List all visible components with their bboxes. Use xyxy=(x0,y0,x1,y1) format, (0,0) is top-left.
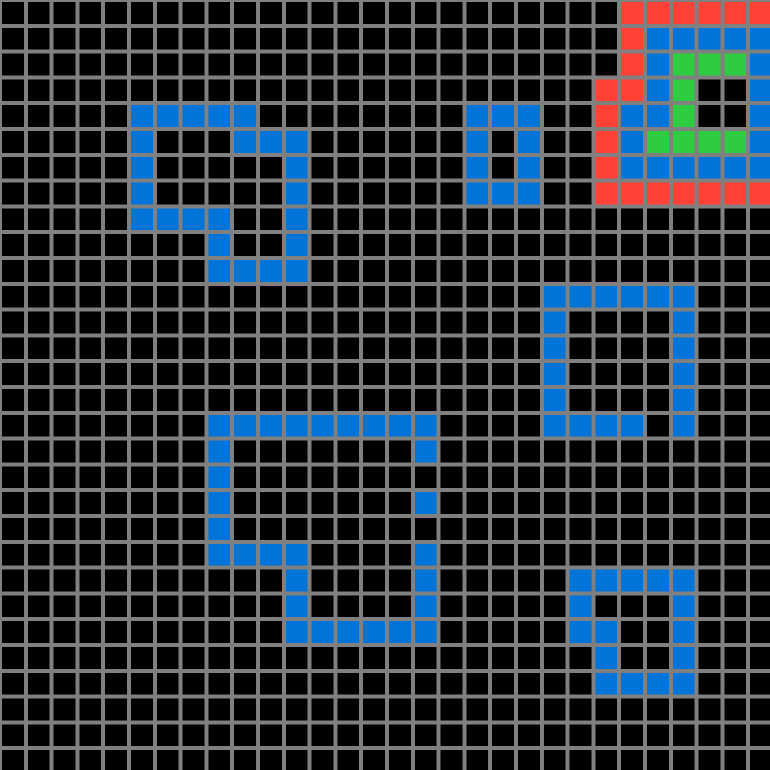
grid-cell-top-right-red-outline[interactable] xyxy=(619,181,645,207)
grid-cell-top-right-blue-ring[interactable] xyxy=(645,26,671,52)
grid-cell-center-large-overlapping-squares[interactable] xyxy=(206,490,232,516)
grid-cell-top-left-overlapping-squares[interactable] xyxy=(181,103,207,129)
grid-cell-bottom-right-overlapping-squares[interactable] xyxy=(568,619,594,645)
grid-cell-bottom-right-overlapping-squares[interactable] xyxy=(671,645,697,671)
grid-cell-top-right-blue-ring[interactable] xyxy=(671,26,697,52)
grid-cell-mid-right-square-outline[interactable] xyxy=(671,310,697,336)
grid-cell-top-right-green-inner[interactable] xyxy=(697,129,723,155)
grid-cell-bottom-right-overlapping-squares[interactable] xyxy=(671,671,697,697)
grid-cell-small-ring-top-middle[interactable] xyxy=(464,129,490,155)
grid-cell-top-left-overlapping-squares[interactable] xyxy=(284,181,310,207)
grid-cell-center-large-overlapping-squares[interactable] xyxy=(284,542,310,568)
grid-cell-center-large-overlapping-squares[interactable] xyxy=(284,568,310,594)
grid-cell-small-ring-top-middle[interactable] xyxy=(464,181,490,207)
grid-cell-top-right-red-outline[interactable] xyxy=(748,0,770,26)
grid-cell-center-large-overlapping-squares[interactable] xyxy=(284,593,310,619)
grid-cell-center-large-overlapping-squares[interactable] xyxy=(232,413,258,439)
grid-cell-top-right-red-outline[interactable] xyxy=(697,181,723,207)
grid-cell-top-right-red-outline[interactable] xyxy=(697,0,723,26)
grid-cell-mid-right-square-outline[interactable] xyxy=(568,284,594,310)
grid-cell-top-right-blue-ring[interactable] xyxy=(748,77,770,103)
grid-cell-top-right-red-outline[interactable] xyxy=(593,181,619,207)
grid-cell-bottom-right-overlapping-squares[interactable] xyxy=(671,593,697,619)
grid-cell-mid-right-square-outline[interactable] xyxy=(619,413,645,439)
grid-cell-top-left-overlapping-squares[interactable] xyxy=(232,129,258,155)
grid-cell-top-right-red-outline[interactable] xyxy=(619,77,645,103)
grid-cell-top-right-blue-ring[interactable] xyxy=(671,155,697,181)
grid-cell-top-left-overlapping-squares[interactable] xyxy=(284,232,310,258)
grid-cell-small-ring-top-middle[interactable] xyxy=(516,103,542,129)
grid-cell-small-ring-top-middle[interactable] xyxy=(464,103,490,129)
grid-cell-mid-right-square-outline[interactable] xyxy=(542,361,568,387)
grid-cell-top-left-overlapping-squares[interactable] xyxy=(181,206,207,232)
grid-cell-bottom-right-overlapping-squares[interactable] xyxy=(568,593,594,619)
grid-cell-center-large-overlapping-squares[interactable] xyxy=(335,619,361,645)
grid-cell-top-right-red-outline[interactable] xyxy=(593,77,619,103)
grid-cell-center-large-overlapping-squares[interactable] xyxy=(361,413,387,439)
grid-cell-mid-right-square-outline[interactable] xyxy=(619,284,645,310)
grid-cell-top-right-blue-ring[interactable] xyxy=(645,52,671,78)
grid-cell-top-left-overlapping-squares[interactable] xyxy=(155,103,181,129)
grid-cell-top-right-green-inner[interactable] xyxy=(697,52,723,78)
grid-cell-top-right-green-inner[interactable] xyxy=(671,77,697,103)
grid-cell-mid-right-square-outline[interactable] xyxy=(671,284,697,310)
grid-cell-top-right-red-outline[interactable] xyxy=(722,181,748,207)
grid-cell-bottom-right-overlapping-squares[interactable] xyxy=(593,671,619,697)
grid-cell-top-right-blue-ring[interactable] xyxy=(748,155,770,181)
grid-cell-mid-right-square-outline[interactable] xyxy=(593,284,619,310)
grid-cell-top-right-green-inner[interactable] xyxy=(645,129,671,155)
grid-cell-top-left-overlapping-squares[interactable] xyxy=(284,155,310,181)
grid-cell-top-left-overlapping-squares[interactable] xyxy=(206,206,232,232)
grid-cell-center-large-overlapping-squares[interactable] xyxy=(206,516,232,542)
grid-cell-top-left-overlapping-squares[interactable] xyxy=(284,258,310,284)
grid-cell-top-right-red-outline[interactable] xyxy=(645,181,671,207)
grid-cell-top-right-red-outline[interactable] xyxy=(671,0,697,26)
grid-cell-center-large-overlapping-squares[interactable] xyxy=(206,413,232,439)
grid-cell-top-right-blue-ring[interactable] xyxy=(645,103,671,129)
colored-cells-layer xyxy=(0,0,770,770)
grid-cell-top-right-green-inner[interactable] xyxy=(671,129,697,155)
grid-cell-small-ring-top-middle[interactable] xyxy=(490,103,516,129)
grid-cell-top-left-overlapping-squares[interactable] xyxy=(206,258,232,284)
grid-cell-top-right-green-inner[interactable] xyxy=(671,103,697,129)
grid-cell-bottom-right-overlapping-squares[interactable] xyxy=(671,568,697,594)
grid-cell-top-left-overlapping-squares[interactable] xyxy=(155,206,181,232)
grid-cell-top-right-red-outline[interactable] xyxy=(748,181,770,207)
grid-cell-top-left-overlapping-squares[interactable] xyxy=(129,181,155,207)
grid-cell-top-right-blue-ring[interactable] xyxy=(748,26,770,52)
grid-cell-top-right-blue-ring[interactable] xyxy=(748,52,770,78)
grid-cell-top-right-red-outline[interactable] xyxy=(593,155,619,181)
grid-cell-mid-right-square-outline[interactable] xyxy=(671,335,697,361)
grid-cell-top-left-overlapping-squares[interactable] xyxy=(232,103,258,129)
grid-cell-small-ring-top-middle[interactable] xyxy=(464,155,490,181)
grid-cell-top-right-blue-ring[interactable] xyxy=(645,77,671,103)
grid-cell-mid-right-square-outline[interactable] xyxy=(542,387,568,413)
grid-cell-center-large-overlapping-squares[interactable] xyxy=(335,413,361,439)
grid-cell-top-right-blue-ring[interactable] xyxy=(619,129,645,155)
grid-cell-center-large-overlapping-squares[interactable] xyxy=(206,464,232,490)
grid-cell-mid-right-square-outline[interactable] xyxy=(671,387,697,413)
grid-cell-center-large-overlapping-squares[interactable] xyxy=(413,439,439,465)
grid-cell-mid-right-square-outline[interactable] xyxy=(542,413,568,439)
grid-cell-center-large-overlapping-squares[interactable] xyxy=(284,619,310,645)
grid-cell-top-right-green-inner[interactable] xyxy=(671,52,697,78)
grid-cell-top-right-blue-ring[interactable] xyxy=(619,103,645,129)
grid-cell-bottom-right-overlapping-squares[interactable] xyxy=(593,645,619,671)
grid-cell-mid-right-square-outline[interactable] xyxy=(593,413,619,439)
grid-cell-mid-right-square-outline[interactable] xyxy=(542,310,568,336)
grid-cell-small-ring-top-middle[interactable] xyxy=(516,155,542,181)
grid-cell-top-right-blue-ring[interactable] xyxy=(722,155,748,181)
grid-cell-center-large-overlapping-squares[interactable] xyxy=(413,593,439,619)
grid-cell-top-right-blue-ring[interactable] xyxy=(748,103,770,129)
grid-cell-top-left-overlapping-squares[interactable] xyxy=(284,206,310,232)
grid-cell-top-right-green-inner[interactable] xyxy=(722,52,748,78)
grid-cell-top-right-red-outline[interactable] xyxy=(645,0,671,26)
grid-cell-bottom-right-overlapping-squares[interactable] xyxy=(568,568,594,594)
grid-cell-top-right-blue-ring[interactable] xyxy=(748,129,770,155)
grid-cell-center-large-overlapping-squares[interactable] xyxy=(206,439,232,465)
grid-cell-bottom-right-overlapping-squares[interactable] xyxy=(619,568,645,594)
grid-cell-bottom-right-overlapping-squares[interactable] xyxy=(619,671,645,697)
grid-cell-top-left-overlapping-squares[interactable] xyxy=(206,232,232,258)
grid-cell-top-right-blue-ring[interactable] xyxy=(645,155,671,181)
grid-cell-top-right-blue-ring[interactable] xyxy=(722,26,748,52)
grid-cell-small-ring-top-middle[interactable] xyxy=(516,181,542,207)
grid-cell-center-large-overlapping-squares[interactable] xyxy=(258,542,284,568)
grid-cell-top-left-overlapping-squares[interactable] xyxy=(258,258,284,284)
grid-cell-mid-right-square-outline[interactable] xyxy=(542,284,568,310)
grid-cell-center-large-overlapping-squares[interactable] xyxy=(387,619,413,645)
grid-cell-top-left-overlapping-squares[interactable] xyxy=(206,103,232,129)
grid-cell-mid-right-square-outline[interactable] xyxy=(542,335,568,361)
grid-cell-mid-right-square-outline[interactable] xyxy=(568,413,594,439)
grid-cell-top-left-overlapping-squares[interactable] xyxy=(129,155,155,181)
grid-cell-center-large-overlapping-squares[interactable] xyxy=(206,542,232,568)
grid-cell-top-right-red-outline[interactable] xyxy=(619,0,645,26)
grid-cell-center-large-overlapping-squares[interactable] xyxy=(413,619,439,645)
grid-cell-center-large-overlapping-squares[interactable] xyxy=(310,413,336,439)
grid-cell-top-right-red-outline[interactable] xyxy=(619,52,645,78)
grid-cell-top-left-overlapping-squares[interactable] xyxy=(129,103,155,129)
grid-cell-top-right-green-inner[interactable] xyxy=(722,129,748,155)
grid-cell-bottom-right-overlapping-squares[interactable] xyxy=(645,671,671,697)
grid-cell-top-left-overlapping-squares[interactable] xyxy=(284,129,310,155)
grid-cell-mid-right-square-outline[interactable] xyxy=(645,284,671,310)
grid-cell-center-large-overlapping-squares[interactable] xyxy=(284,413,310,439)
grid-cell-center-large-overlapping-squares[interactable] xyxy=(413,542,439,568)
grid-cell-center-large-overlapping-squares[interactable] xyxy=(387,413,413,439)
grid-cell-top-right-red-outline[interactable] xyxy=(722,0,748,26)
grid-cell-top-left-overlapping-squares[interactable] xyxy=(129,206,155,232)
puzzle-grid-board[interactable] xyxy=(0,0,770,770)
grid-cell-top-right-blue-ring[interactable] xyxy=(697,26,723,52)
grid-cell-top-right-red-outline[interactable] xyxy=(593,129,619,155)
grid-cell-small-ring-top-middle[interactable] xyxy=(490,181,516,207)
grid-cell-bottom-right-overlapping-squares[interactable] xyxy=(645,568,671,594)
grid-cell-top-left-overlapping-squares[interactable] xyxy=(258,129,284,155)
grid-cell-center-large-overlapping-squares[interactable] xyxy=(361,619,387,645)
grid-cell-top-right-blue-ring[interactable] xyxy=(697,155,723,181)
grid-cell-top-left-overlapping-squares[interactable] xyxy=(232,258,258,284)
grid-cell-mid-right-square-outline[interactable] xyxy=(671,413,697,439)
grid-cell-top-right-red-outline[interactable] xyxy=(593,103,619,129)
grid-cell-top-right-blue-ring[interactable] xyxy=(619,155,645,181)
grid-cell-bottom-right-overlapping-squares[interactable] xyxy=(593,619,619,645)
grid-cell-top-left-overlapping-squares[interactable] xyxy=(129,129,155,155)
grid-cell-bottom-right-overlapping-squares[interactable] xyxy=(671,619,697,645)
grid-cell-top-right-red-outline[interactable] xyxy=(619,26,645,52)
grid-cell-center-large-overlapping-squares[interactable] xyxy=(413,413,439,439)
grid-cell-small-ring-top-middle[interactable] xyxy=(516,129,542,155)
grid-cell-center-large-overlapping-squares[interactable] xyxy=(413,568,439,594)
grid-cell-center-large-overlapping-squares[interactable] xyxy=(413,490,439,516)
grid-cell-top-right-red-outline[interactable] xyxy=(671,181,697,207)
grid-cell-center-large-overlapping-squares[interactable] xyxy=(310,619,336,645)
grid-cell-mid-right-square-outline[interactable] xyxy=(671,361,697,387)
grid-cell-bottom-right-overlapping-squares[interactable] xyxy=(593,568,619,594)
grid-cell-center-large-overlapping-squares[interactable] xyxy=(258,413,284,439)
grid-cell-center-large-overlapping-squares[interactable] xyxy=(232,542,258,568)
